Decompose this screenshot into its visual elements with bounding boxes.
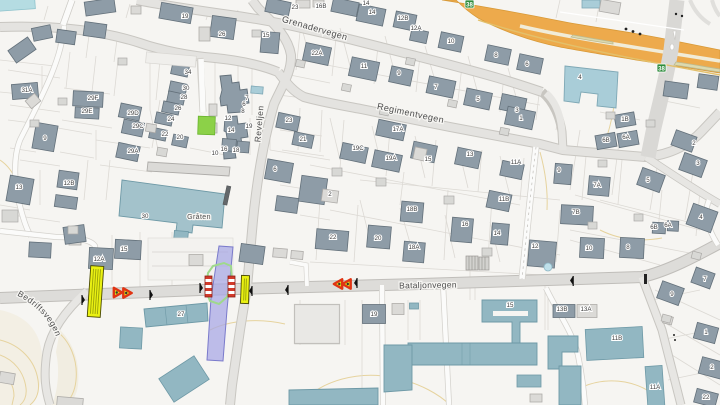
- svg-text:11B: 11B: [612, 335, 623, 342]
- svg-text:26: 26: [175, 105, 182, 112]
- svg-text:18B: 18B: [406, 206, 417, 213]
- svg-text:29E: 29E: [81, 108, 92, 115]
- svg-text:11A: 11A: [650, 384, 661, 391]
- svg-text:11: 11: [361, 63, 368, 70]
- svg-text:6B: 6B: [602, 137, 610, 144]
- svg-text:6: 6: [273, 166, 277, 173]
- svg-text:1B: 1B: [621, 116, 629, 123]
- svg-text:5: 5: [646, 177, 650, 184]
- svg-text:15: 15: [121, 246, 128, 253]
- svg-text:22: 22: [162, 131, 169, 138]
- svg-text:34: 34: [185, 69, 192, 76]
- svg-text:38: 38: [658, 67, 665, 73]
- svg-text:38: 38: [466, 3, 473, 9]
- svg-text:2: 2: [692, 140, 696, 147]
- svg-text:31A: 31A: [21, 87, 33, 94]
- svg-text:7: 7: [245, 95, 249, 102]
- svg-text:28: 28: [181, 94, 188, 101]
- svg-text:22A: 22A: [311, 50, 323, 57]
- svg-text:6A: 6A: [622, 134, 630, 141]
- svg-text:22: 22: [703, 394, 710, 401]
- svg-text:2: 2: [710, 364, 714, 371]
- svg-text:13B: 13B: [556, 306, 567, 313]
- svg-text:5: 5: [476, 96, 480, 103]
- svg-text:27: 27: [178, 311, 185, 318]
- svg-text:11B: 11B: [499, 196, 510, 203]
- svg-text:17A: 17A: [392, 126, 404, 133]
- svg-text:18A: 18A: [408, 244, 420, 251]
- svg-text:7A: 7A: [593, 182, 601, 189]
- svg-text:7B: 7B: [572, 209, 580, 216]
- svg-text:24: 24: [168, 116, 175, 123]
- svg-text:1: 1: [519, 115, 523, 122]
- svg-text:15: 15: [263, 32, 270, 39]
- svg-text:Gråten: Gråten: [187, 213, 211, 221]
- svg-text:3: 3: [515, 107, 519, 114]
- svg-text:3: 3: [696, 160, 700, 167]
- svg-text:6: 6: [242, 101, 246, 108]
- svg-text:4: 4: [578, 74, 582, 81]
- svg-text:20: 20: [375, 235, 382, 242]
- svg-text:16: 16: [462, 221, 469, 228]
- svg-text:7: 7: [434, 84, 438, 91]
- svg-text:12: 12: [532, 243, 539, 250]
- svg-text:4: 4: [699, 214, 703, 221]
- svg-text:6A: 6A: [664, 222, 672, 229]
- svg-text:14: 14: [228, 127, 235, 134]
- svg-text:15: 15: [507, 302, 514, 309]
- svg-text:22: 22: [330, 234, 337, 241]
- svg-text:8: 8: [494, 52, 498, 59]
- svg-text:12A: 12A: [93, 256, 105, 263]
- svg-text:12B: 12B: [63, 180, 74, 187]
- svg-text:19: 19: [246, 123, 253, 130]
- svg-text:12B: 12B: [397, 15, 408, 22]
- svg-text:18: 18: [233, 147, 240, 154]
- svg-text:10: 10: [448, 38, 455, 45]
- svg-text:19C: 19C: [352, 145, 364, 152]
- svg-text:2: 2: [328, 191, 332, 198]
- svg-text:10: 10: [586, 245, 593, 252]
- svg-text:14: 14: [369, 9, 376, 16]
- svg-text:9: 9: [397, 70, 401, 77]
- svg-text:13A: 13A: [580, 306, 592, 313]
- svg-text:20: 20: [177, 134, 184, 141]
- svg-text:14: 14: [363, 0, 370, 7]
- svg-text:9: 9: [557, 167, 561, 174]
- svg-text:9: 9: [43, 135, 47, 142]
- svg-text:16B: 16B: [315, 3, 326, 10]
- svg-text:1: 1: [704, 329, 708, 336]
- svg-text:8: 8: [626, 244, 630, 251]
- svg-text:6B: 6B: [650, 224, 658, 231]
- svg-text:15: 15: [425, 156, 432, 163]
- svg-text:14: 14: [494, 230, 501, 237]
- svg-text:11A: 11A: [511, 159, 522, 166]
- svg-text:12: 12: [225, 115, 232, 122]
- svg-text:29D: 29D: [127, 110, 139, 117]
- svg-text:13: 13: [467, 151, 474, 158]
- svg-text:29A: 29A: [127, 148, 139, 155]
- svg-text:19: 19: [371, 311, 378, 318]
- svg-text:10: 10: [212, 150, 219, 157]
- svg-text:19: 19: [182, 13, 189, 20]
- svg-text:19A: 19A: [385, 155, 397, 162]
- svg-text:26: 26: [219, 31, 226, 38]
- svg-text:23: 23: [292, 4, 299, 11]
- svg-text:12A: 12A: [410, 25, 422, 32]
- svg-text:30: 30: [142, 213, 149, 220]
- svg-text:13: 13: [16, 184, 23, 191]
- svg-text:23: 23: [286, 117, 293, 124]
- svg-text:Bataljonvegen: Bataljonvegen: [399, 279, 457, 290]
- svg-text:16: 16: [221, 146, 228, 153]
- svg-text:29C: 29C: [132, 123, 144, 130]
- svg-text:30: 30: [183, 85, 190, 92]
- svg-text:21: 21: [300, 136, 307, 143]
- svg-text:7: 7: [703, 276, 707, 283]
- svg-text:6: 6: [525, 61, 529, 68]
- svg-text:29F: 29F: [88, 95, 99, 102]
- svg-text:9: 9: [670, 291, 674, 298]
- svg-text:8: 8: [241, 108, 245, 115]
